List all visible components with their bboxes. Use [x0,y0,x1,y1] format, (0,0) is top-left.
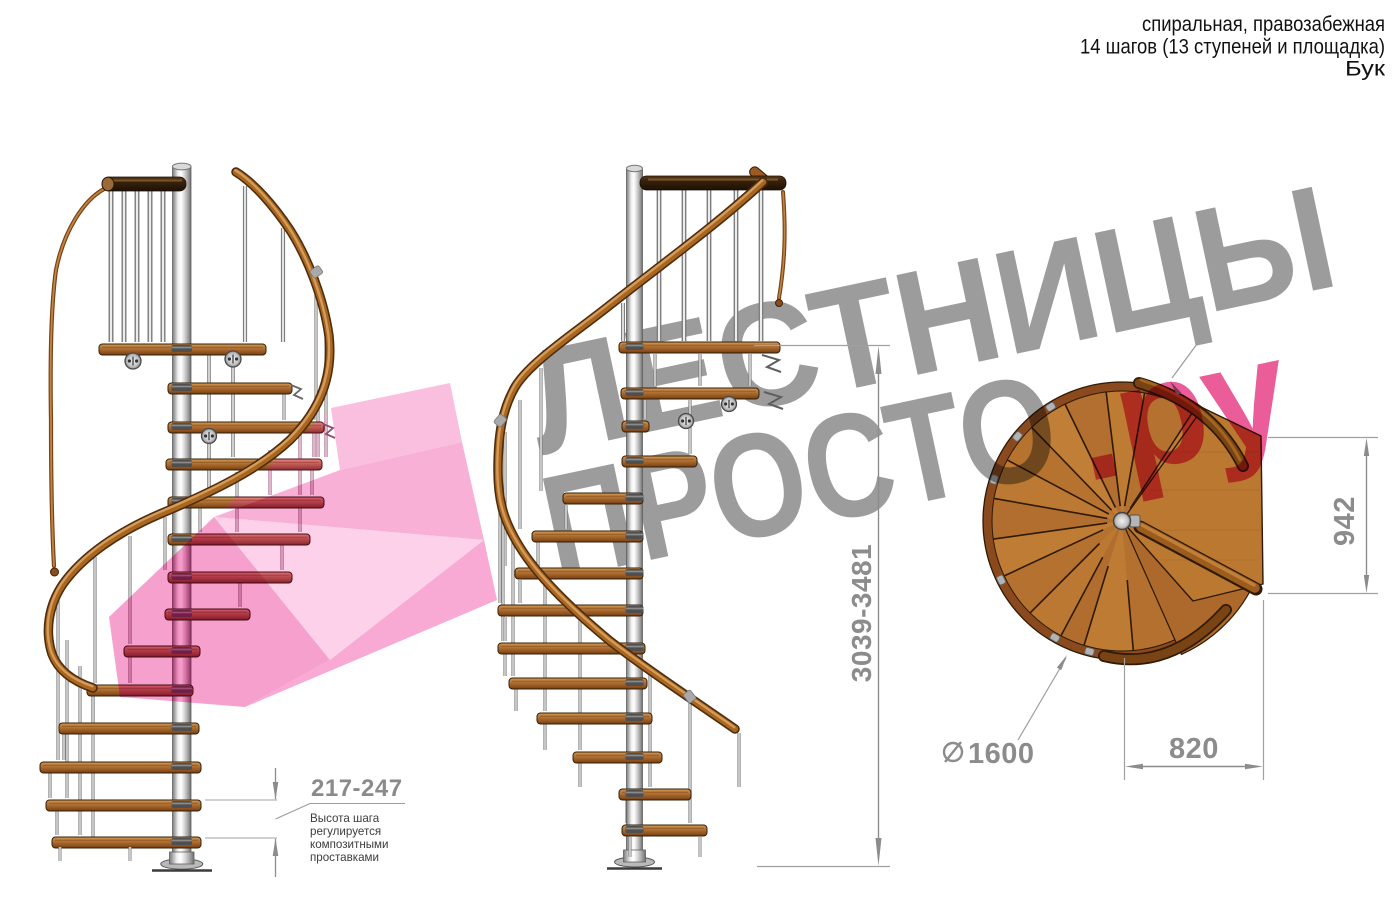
svg-text:3039-3481: 3039-3481 [846,544,877,682]
svg-text:217-247: 217-247 [311,775,403,802]
svg-text:регулируется: регулируется [310,825,381,838]
svg-text:композитными: композитными [310,838,389,851]
svg-text:14 шагов (13 ступеней и площад: 14 шагов (13 ступеней и площадка) [1080,35,1385,59]
svg-text:проставками: проставками [310,851,379,864]
svg-text:спиральная, правозабежная: спиральная, правозабежная [1142,12,1385,36]
svg-text:1600: 1600 [968,738,1035,770]
svg-text:942: 942 [1329,496,1361,546]
svg-text:Высота шага: Высота шага [310,812,380,825]
svg-text:Бук: Бук [1345,57,1386,81]
svg-text:820: 820 [1169,733,1219,765]
